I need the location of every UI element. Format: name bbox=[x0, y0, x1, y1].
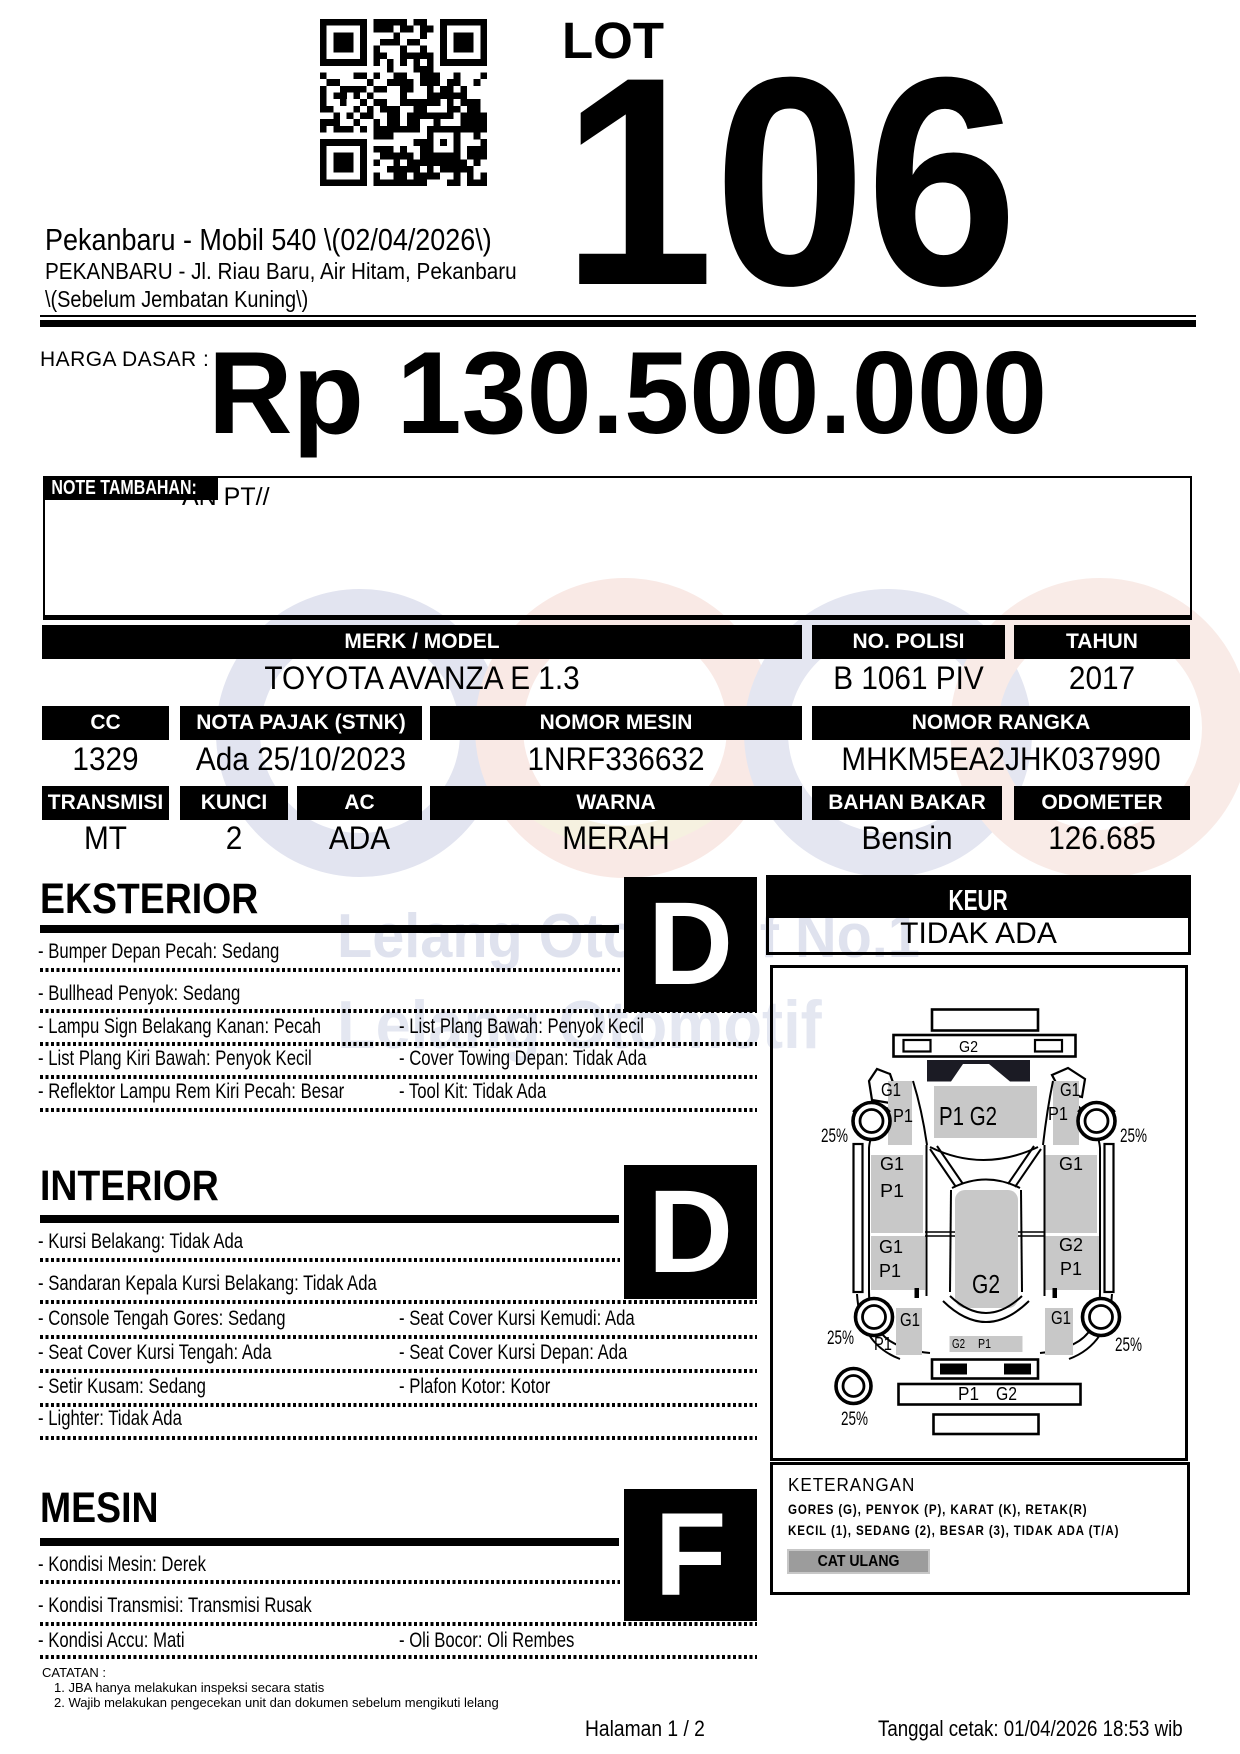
svg-text:G1: G1 bbox=[1059, 1154, 1083, 1174]
svg-text:P1: P1 bbox=[978, 1336, 991, 1351]
svg-text:G2: G2 bbox=[952, 1336, 965, 1351]
svg-text:G1: G1 bbox=[1051, 1308, 1071, 1328]
svg-text:P1: P1 bbox=[1060, 1259, 1082, 1279]
svg-text:G1: G1 bbox=[879, 1237, 903, 1257]
svg-text:P1: P1 bbox=[879, 1261, 901, 1281]
svg-text:G1: G1 bbox=[881, 1080, 901, 1100]
svg-text:25%: 25% bbox=[1120, 1126, 1147, 1147]
svg-text:P1 G2: P1 G2 bbox=[939, 1101, 997, 1131]
svg-text:G2: G2 bbox=[972, 1269, 1000, 1299]
svg-text:G2: G2 bbox=[959, 1039, 978, 1056]
svg-text:G2: G2 bbox=[1059, 1235, 1083, 1255]
svg-text:25%: 25% bbox=[841, 1409, 868, 1430]
svg-text:25%: 25% bbox=[821, 1126, 848, 1147]
svg-text:G2: G2 bbox=[996, 1384, 1017, 1404]
svg-text:P1: P1 bbox=[958, 1384, 979, 1404]
svg-text:P1: P1 bbox=[874, 1334, 892, 1354]
svg-text:P1: P1 bbox=[880, 1181, 904, 1201]
svg-text:25%: 25% bbox=[827, 1328, 854, 1349]
svg-text:25%: 25% bbox=[1115, 1335, 1142, 1356]
svg-text:G1: G1 bbox=[900, 1310, 920, 1330]
svg-text:G1: G1 bbox=[1060, 1080, 1080, 1100]
svg-text:P1: P1 bbox=[893, 1106, 913, 1126]
svg-text:G1: G1 bbox=[880, 1154, 904, 1174]
svg-text:P1: P1 bbox=[1048, 1104, 1068, 1124]
